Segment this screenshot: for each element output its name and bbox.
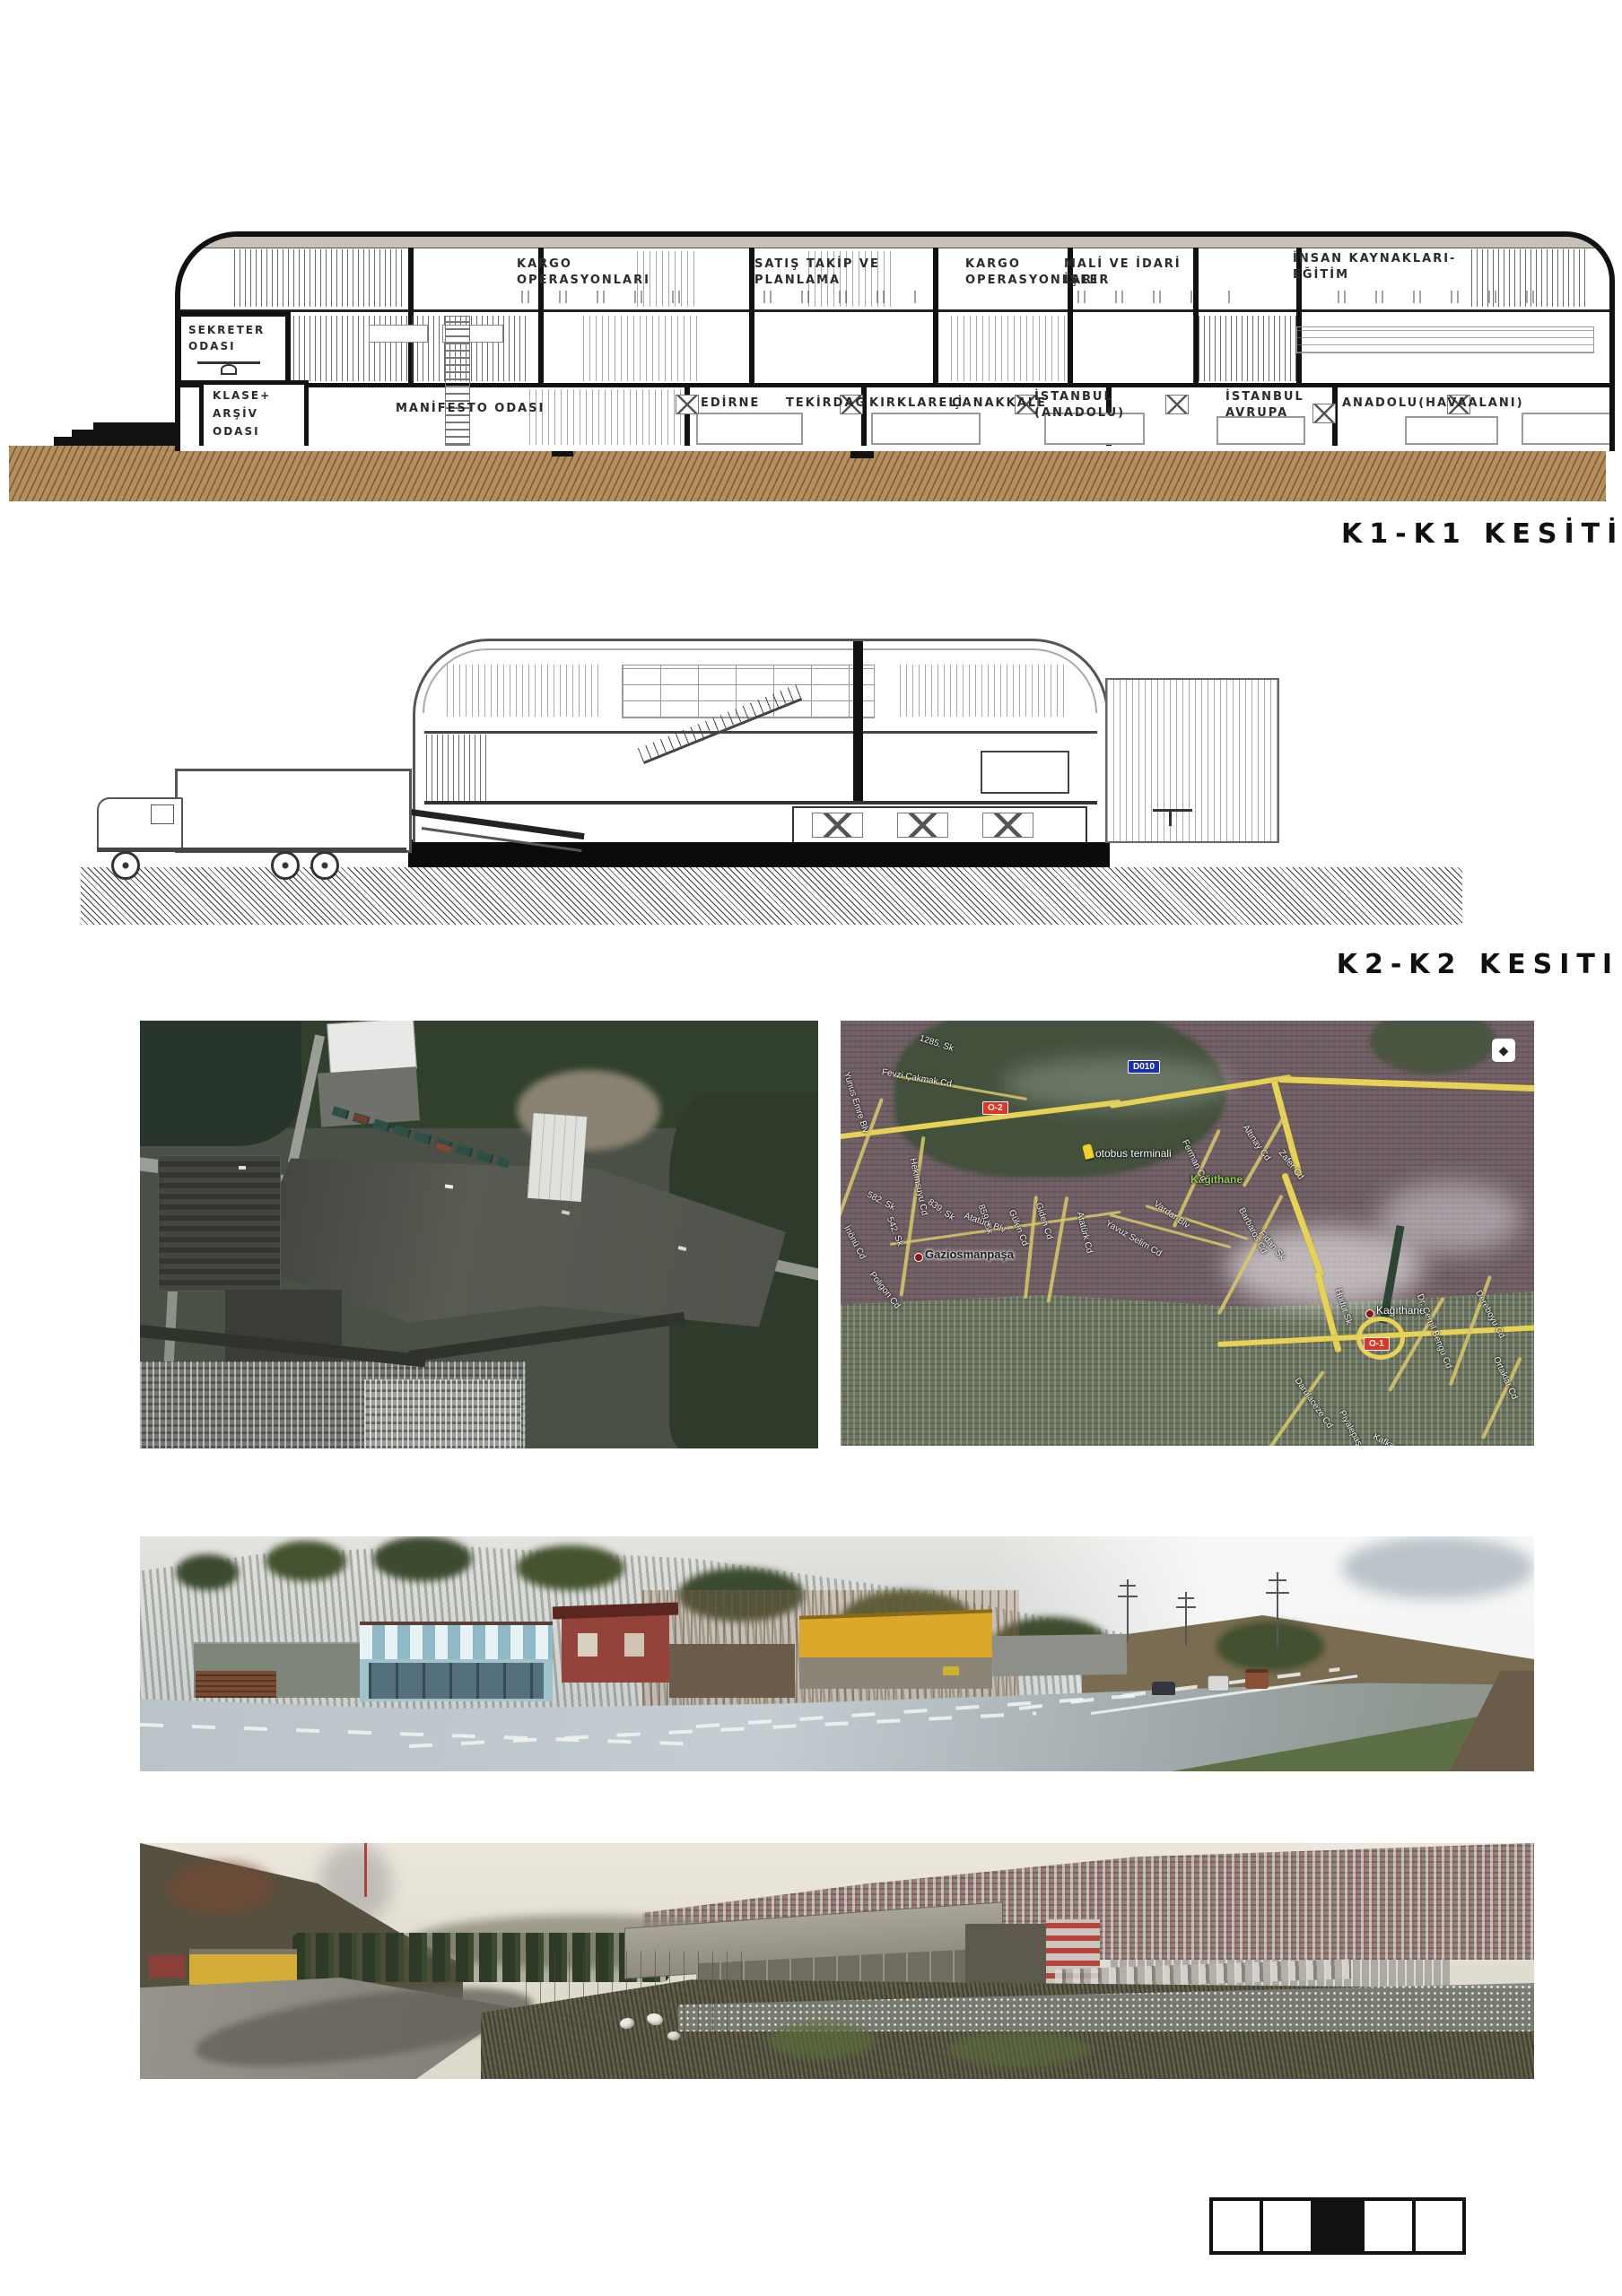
cab-window — [151, 804, 174, 824]
clerestory-panel — [900, 665, 1066, 717]
road-badge-o2: O-2 — [982, 1101, 1008, 1115]
map-logo-icon: ◆ — [1492, 1039, 1515, 1062]
industrial-building — [158, 1155, 281, 1291]
clad-panel — [529, 389, 682, 445]
truck-drawing — [90, 758, 422, 874]
red-shed — [149, 1955, 185, 1978]
truck-wheel — [310, 851, 339, 880]
k2-building-shell — [413, 639, 1109, 842]
power-pylon — [1118, 1579, 1138, 1642]
clad-panel — [1193, 316, 1296, 381]
trash-bag — [667, 2031, 680, 2040]
entry-steps — [72, 430, 188, 437]
office-label-tekirdag: TEKİRDAĞ — [786, 395, 867, 413]
scale-segment — [1365, 2201, 1415, 2251]
blue-shop-building — [360, 1622, 553, 1701]
office-label-canakkale: ÇANAKKALE — [952, 395, 1047, 413]
office-counter — [1405, 416, 1498, 445]
saplings — [526, 1951, 750, 2040]
house-window — [624, 1633, 644, 1657]
truck-trailer — [175, 769, 412, 853]
roof-strip — [180, 237, 1609, 248]
office-label-edirne: EDİRNE — [701, 395, 760, 413]
room-label-manifesto: MANİFESTO ODASI — [396, 400, 545, 418]
house-window — [578, 1633, 597, 1657]
room-label-insan: İNSAN KAYNAKLARI-EĞİTİM — [1293, 251, 1456, 283]
white-warehouse — [528, 1113, 587, 1202]
aerial-photo-site — [140, 1021, 818, 1448]
section-k1-drawing: KARGOOPERASYONLARI SATIŞ TAKİP VEPLANLAM… — [0, 0, 1622, 592]
green-weeds — [768, 2022, 876, 2058]
k2-right-wing — [1105, 678, 1279, 843]
chair-glyph — [221, 364, 237, 375]
office-counter — [696, 413, 803, 445]
desks-row — [521, 291, 701, 303]
gray-shed — [992, 1634, 1128, 1677]
room-label-klase: KLASE+ ARŞİV ODASI — [213, 387, 271, 440]
room-label-satis: SATIŞ TAKİP VEPLANLAMA — [754, 257, 880, 289]
x-brace — [812, 813, 863, 838]
clad-panel — [234, 249, 405, 307]
car-yellow — [943, 1666, 959, 1675]
clad-panel — [951, 316, 1068, 381]
car-lot — [364, 1379, 521, 1448]
x-brace — [676, 395, 699, 414]
road-badge-o1: O-1 — [1364, 1337, 1390, 1351]
x-brace — [1165, 395, 1189, 414]
power-pylon — [1176, 1592, 1196, 1646]
tree-clump — [176, 1554, 239, 1590]
stream-channel — [408, 1312, 685, 1362]
scale-bar — [1209, 2197, 1466, 2255]
section-k2-drawing: K2-K2 KESITI — [0, 592, 1622, 1013]
x-brace — [982, 813, 1033, 838]
clerestory-panel — [447, 665, 599, 717]
room-label-sekreter: SEKRETERODASI — [188, 322, 265, 354]
room-label-mali: MALİ VE İDARİİŞLER — [1064, 257, 1182, 289]
striped-fascia — [360, 1625, 553, 1659]
core-wall — [853, 641, 863, 801]
red-house — [562, 1615, 669, 1683]
power-pylon — [1266, 1572, 1289, 1648]
antenna-mast — [364, 1843, 367, 1897]
yellow-building — [189, 1949, 297, 1985]
truck-wheel — [111, 851, 140, 880]
section-k1-title: K1-K1 KESİTİ — [1341, 518, 1610, 550]
stair-ladder — [445, 316, 470, 446]
desks-row — [1338, 291, 1553, 303]
place-label-gaziosmanpasa: Gaziosmanpaşa — [925, 1248, 1014, 1261]
clad-wall — [426, 735, 489, 801]
truck-cab — [97, 797, 183, 851]
room-label-kargo-1: KARGOOPERASYONLARI — [517, 257, 650, 289]
car-suv — [1152, 1682, 1175, 1695]
tree-clump — [517, 1545, 624, 1590]
scale-segment — [1263, 2201, 1313, 2251]
floor-line — [424, 801, 1097, 804]
place-label-terminal: otobus terminali — [1095, 1147, 1172, 1160]
table-leg — [1169, 812, 1172, 826]
satellite-map: O-2 D010 O-1 otobus terminali Gaziosmanp… — [841, 1021, 1534, 1446]
office-label-istanbul-avrupa: İSTANBULAVRUPA — [1225, 389, 1304, 422]
office-counter — [1522, 413, 1615, 445]
floor-line — [424, 731, 1097, 734]
red-dot-marker — [1365, 1309, 1374, 1318]
scale-segment — [1416, 2201, 1462, 2251]
x-brace — [1312, 404, 1336, 423]
site-photo-lot — [140, 1843, 1534, 2079]
desks-row — [763, 291, 916, 303]
tree-clump — [373, 1536, 472, 1581]
structural-column — [933, 248, 938, 383]
room-klase-arsiv: KLASE+ ARŞİV ODASI — [199, 380, 309, 446]
interior-window — [981, 751, 1069, 794]
ground-hatch-tan — [9, 446, 1606, 501]
tree-clump — [266, 1541, 346, 1581]
storefront — [369, 1663, 544, 1699]
green-weeds — [947, 2031, 1091, 2067]
road-badge-d010: D010 — [1128, 1060, 1160, 1074]
car-dot — [239, 1166, 246, 1170]
truck-chassis — [97, 848, 406, 852]
scale-segment — [1213, 2201, 1263, 2251]
desks-row — [1077, 291, 1230, 303]
foundation-slab — [408, 839, 1110, 867]
site-photo-road — [140, 1536, 1534, 1771]
cloud — [1342, 1536, 1534, 1599]
car-van — [1208, 1675, 1229, 1692]
brick-stack — [196, 1671, 276, 1698]
floor-line — [180, 383, 1609, 387]
office-counter — [871, 413, 981, 445]
truck-wheel — [271, 851, 300, 880]
car-truck — [1245, 1669, 1269, 1689]
table-glyph — [1153, 809, 1192, 812]
room-sekreter-odasi: SEKRETERODASI — [176, 311, 291, 386]
presentation-board: KARGOOPERASYONLARI SATIŞ TAKİP VEPLANLAM… — [0, 0, 1622, 2296]
x-brace — [897, 813, 948, 838]
section-k2-title: K2-K2 KESITI — [1323, 949, 1619, 980]
k1-building-shell: KARGOOPERASYONLARI SATIŞ TAKİP VEPLANLAM… — [175, 231, 1615, 451]
window-band — [1296, 326, 1594, 353]
office-label-kirklareli: KIRKLARELİ — [869, 395, 964, 413]
office-label-anadolu-havaalani: ANADOLU(HAVAALANI) — [1342, 395, 1524, 413]
shed — [669, 1644, 795, 1698]
autumn-patch — [167, 1861, 275, 1915]
warehouse-wall — [799, 1657, 992, 1689]
window-opening — [369, 325, 428, 343]
scale-segment-filled — [1314, 2201, 1365, 2251]
clad-panel — [583, 316, 700, 381]
office-label-istanbul-anadolu: İSTANBUL(ANADOLU) — [1034, 389, 1125, 422]
forest-area — [140, 1021, 301, 1146]
red-dot-marker — [914, 1253, 923, 1262]
floor-line — [180, 309, 1609, 312]
loading-room — [792, 806, 1087, 842]
